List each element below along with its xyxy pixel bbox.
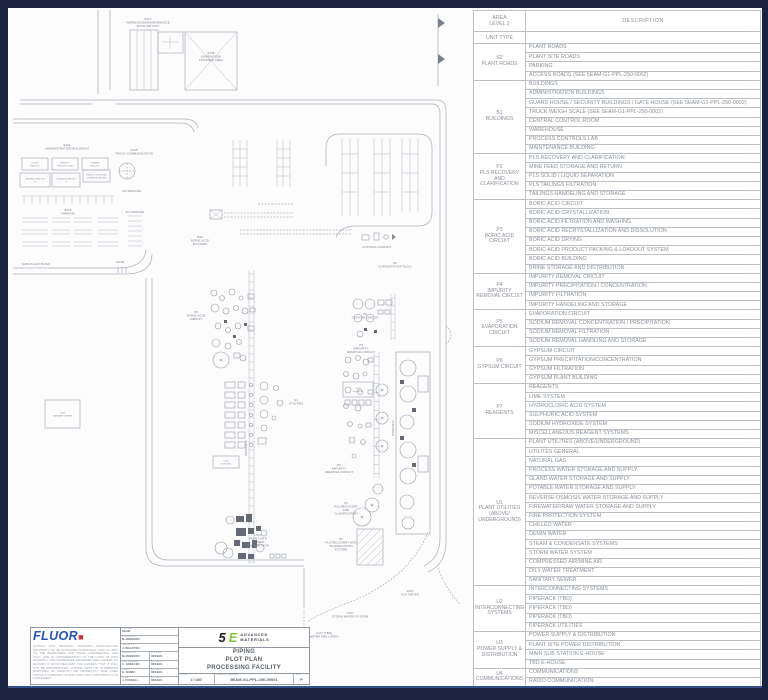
area-table-panel: AREALEVEL 2 DESCRIPTION UNIT TYPE S2PLAN…: [473, 10, 761, 687]
description-cell: NATURAL GAS: [526, 457, 761, 466]
building-box-label: CHANGEFACILITY: [90, 162, 100, 168]
drawing-label: U107STORM WATER SYSTEM: [332, 611, 369, 619]
utility-equipment: [225, 422, 235, 428]
drawing-label: PIPERACK: [244, 439, 248, 456]
approvals-table: CONTRACT5EAMDESIGNED BYM.JOHNSONCHECKED …: [121, 628, 179, 684]
utility-equipment: [238, 382, 245, 388]
description-cell: PIPERACK (TBD): [526, 604, 761, 613]
parking-stalls: [22, 196, 142, 246]
description-cell: WAREHOUSE: [526, 126, 761, 135]
utility-equipment: [225, 442, 235, 448]
approval-row: FLUORK. NAMMAPP DATE06/19/24: [121, 669, 178, 677]
area-group-label: U3POWER SUPPLY & DISTRIBUTION: [474, 632, 526, 669]
area-group-label: P4IMPURITY REMOVAL CIRCUIT: [474, 273, 526, 310]
drawing-label: 8101ADMINISTRATION BUILDINGS: [45, 143, 89, 151]
5e-logo-wordmark: ADVANCED MATERIALS: [240, 633, 269, 642]
description-cell: DEMIN WATER: [526, 530, 761, 539]
p4-impurity-cluster: [344, 356, 384, 527]
table-row: U1PLANT UTILITIES (ABOVE/ UNDERGROUND)PL…: [474, 439, 761, 448]
utility-equipment: [238, 402, 245, 408]
drawing-labels: 8107WAREHOUSE/MAINTENANCEBLDG 150'X110'8…: [22, 17, 420, 639]
drawing-label: P6GYPSUM PLANT BLDG: [378, 261, 412, 269]
description-cell: POTABLE WATER STORAGE AND SUPPLY: [526, 485, 761, 494]
drawing-label: 8107WAREHOUSE/MAINTENANCEBLDG 150'X110': [126, 17, 170, 28]
description-cell: GYPSUM PRECIPITATION/CONCENTRATION: [526, 356, 761, 365]
drawing-label: P3ABORIC ACIDBUILDING: [191, 235, 210, 246]
description-header: DESCRIPTION: [526, 11, 761, 32]
drawing-label: PIPERACK: [391, 419, 395, 436]
description-cell: IMPURITY REMOVAL CIRCUIT: [526, 273, 761, 282]
drawing-number-cell: DRAWING NUMBER 5EAM-G1-PPL-250-00001: [215, 674, 294, 684]
area-description-table: AREALEVEL 2 DESCRIPTION UNIT TYPE S2PLAN…: [473, 10, 761, 687]
description-cell: BRINE STORAGE AND DISTRIBUTION: [526, 264, 761, 273]
description-cell: MAINTENANCE BUILDING: [526, 145, 761, 154]
sheet-bottom-edge: [8, 686, 762, 688]
description-cell: TAILINGS HANDELING AND STORAGE: [526, 191, 761, 200]
description-cell: GUARD HOUSE / SECURITY BUILDINGS / GATE …: [526, 99, 761, 108]
drawing-label: EV PARKING: [126, 210, 145, 214]
5e-logo-five: 5: [219, 631, 226, 644]
description-cell: CHILLED WATER: [526, 521, 761, 530]
description-cell: IMPURITY PRECIPITATION / CONCENTRATION: [526, 282, 761, 291]
description-cell: ACCESS ROADS (SEE 5EAM-G1-PPL-250-0002): [526, 71, 761, 80]
piperacks: [249, 270, 395, 564]
unit-type-empty-cell: [526, 32, 761, 44]
area-group-label: U1PLANT UTILITIES (ABOVE/ UNDERGROUND): [474, 439, 526, 586]
gypsum-loadout: [362, 233, 396, 240]
table-row: B1BUILDINGSBUILDINGS: [474, 80, 761, 89]
drawing-label: 8201PARKING: [61, 208, 75, 216]
area-group-label: P5EVAPORATION CIRCUIT: [474, 310, 526, 347]
description-cell: BORIC ACID CIRCUIT: [526, 200, 761, 209]
area-group-label: P7REAGENTS: [474, 383, 526, 438]
drawing-label: EV PARKING: [123, 189, 142, 193]
approval-row: SUPERVISORM.JOHNSONAPP DATE06/19/24: [121, 652, 178, 660]
drawing-label: 8105TRUCK COMMUNICATION: [115, 148, 153, 156]
description-cell: MAIN SUB STATION E-HOUSE: [526, 650, 761, 659]
description-cell: PIPERACK UTILITIES: [526, 622, 761, 631]
description-cell: STEAM & CONDENSATE SYSTEMS: [526, 540, 761, 549]
building-box-label: ADMINISTRATIONA: [26, 178, 45, 184]
drawing-label: P4IMPURITYREMOVAL CIRCUIT: [347, 343, 375, 354]
description-cell: GLAND WATER STORAGE AND SUPPLY: [526, 475, 761, 484]
description-cell: PROCESS CONTROLS LAB: [526, 135, 761, 144]
description-cell: CENTRAL CONTROL ROOM: [526, 117, 761, 126]
approval-row: DESIGNED BYM.JOHNSON: [121, 636, 178, 644]
description-cell: FIRE PROTECTION SYSTEM: [526, 512, 761, 521]
table-row: P3BORIC ACID CIRCUITBORIC ACID CIRCUIT: [474, 200, 761, 209]
table-row: P6GYPSUM CIRCUITGYPSUM CIRCUIT: [474, 347, 761, 356]
description-cell: FIREWATER/RAW WATER STORAGE AND SUPPLY: [526, 503, 761, 512]
table-row: U2INTERCONNECTING SYSTEMSINTERCONNECTING…: [474, 586, 761, 595]
approval-row: CLIENTJ. FUSSELLAPP DATE06/19/24: [121, 677, 178, 684]
drawing-label: 2021H2O METER: [401, 589, 420, 597]
drawing-label: P2PLS RECOVERY ANDCLARIFICATIONFUTURE: [325, 537, 357, 552]
description-cell: IMPURITY FILTRATION: [526, 292, 761, 301]
fluor-logo-dot: ■: [78, 632, 84, 642]
description-cell: PLS RECOVERY AND CLARIFICATION: [526, 154, 761, 163]
description-cell: PLS TAILINGS FILTRATION: [526, 181, 761, 190]
utility-equipment: [249, 443, 252, 446]
building-box-label: U301E-HOUSE: [353, 388, 364, 393]
utility-equipment: [238, 432, 245, 438]
scale-cell: SCALE 1"=60': [179, 674, 215, 684]
area-group-label: P6GYPSUM CIRCUIT: [474, 347, 526, 384]
approval-row: LEAD ENGINEERC. ANGELESAPP DATE06/19/24: [121, 661, 178, 669]
description-cell: GYPSUM FILTRATION: [526, 365, 761, 374]
utility-equipment: [238, 412, 245, 418]
description-cell: COMPRESSED AIR/MINE AIR: [526, 558, 761, 567]
table-row: S2PLANT ROADSPLANT ROADS: [474, 44, 761, 53]
table-row: U4COMMUNICATIONSCOMMUNICATIONS: [474, 668, 761, 677]
utility-equipment: [249, 403, 252, 406]
area-group-label: P2PLS RECOVERY AND CLARIFICATION: [474, 154, 526, 200]
area-group-label: U4COMMUNICATIONS: [474, 668, 526, 686]
plot-plan-drawing: LUNCHFACILITYFACILITYPROCESS LABCHANGEFA…: [8, 8, 470, 686]
description-cell: SODIUM REMOVAL CONCENTRATION / PRECIPITA…: [526, 319, 761, 328]
roads: [13, 10, 451, 634]
description-cell: BORIC ACID DRYING: [526, 236, 761, 245]
description-cell: PIPERACK (TBD): [526, 595, 761, 604]
utility-equipment: [225, 392, 235, 398]
utility-equipment: [225, 402, 235, 408]
description-cell: SANITARY SEWER: [526, 576, 761, 585]
drawing-title: PIPING PLOT PLAN PROCESSING FACILITY: [179, 648, 309, 672]
description-cell: PROCESS WATER STORAGE AND SUPPLY: [526, 466, 761, 475]
drawing-label: P4IMPURITYREMOVAL CIRCUIT: [325, 463, 353, 474]
description-cell: INTERCONNECTING SYSTEMS: [526, 586, 761, 595]
tank-farm: [376, 352, 430, 534]
p2-future-hatch: [357, 529, 383, 565]
description-cell: MINE FEED STORAGE AND RETURN: [526, 163, 761, 172]
description-cell: COMMUNICATIONS: [526, 668, 761, 677]
description-cell: STORM WATER SYSTEM: [526, 549, 761, 558]
drawing-label: U1UTILITIES: [289, 398, 303, 406]
approval-row: CONTRACT5EAM: [121, 628, 178, 636]
building-box-label: FACILITY FIRST AIDCOMMUNICATIONS: [86, 174, 107, 180]
boric-acid-building: [210, 204, 352, 234]
description-cell: BORIC ACID FILTRATION AND WASHING: [526, 218, 761, 227]
utility-equipment: [249, 413, 252, 416]
drawing-label: GYPSUM LOADOUT: [362, 245, 391, 249]
utility-equipment: [238, 392, 245, 398]
description-cell: HYDROCLORIC ACID SYSTEM: [526, 402, 761, 411]
description-cell: SODIUM REMOVAL HANDLING AND STORAGE: [526, 338, 761, 347]
table-row: P7REAGENTSREAGENTS: [474, 383, 761, 392]
table-row: P5EVAPORATION CIRCUITEVAPORATION CIRCUIT: [474, 310, 761, 319]
description-cell: REAGENTS: [526, 383, 761, 392]
drawing-sheet: LUNCHFACILITYFACILITYPROCESS LABCHANGEFA…: [8, 8, 762, 686]
title-panel: 5 E ADVANCED MATERIALS PIPING PLOT PLAN …: [179, 628, 309, 684]
description-cell: BORIC ACID BUILDING: [526, 255, 761, 264]
description-cell: OILY WATER TREATMENT: [526, 567, 761, 576]
description-cell: BUILDINGS: [526, 80, 761, 89]
description-cell: PLANT SITE ROADS: [526, 53, 761, 62]
drawing-label: P2PLS RECOVERYANDCLARIFICATION: [334, 501, 358, 516]
drawing-label: GATE: [116, 260, 124, 264]
parking-area: [22, 196, 142, 246]
table-row: P4IMPURITY REMOVAL CIRCUITIMPURITY REMOV…: [474, 273, 761, 282]
p3-equipment-cluster: [211, 289, 255, 368]
description-cell: PLANT UTILITIES (ABOVE/UNDERGROUND): [526, 439, 761, 448]
rev-cell: REV P: [294, 674, 309, 684]
description-cell: ADMINISTRATION BUILDINGS: [526, 89, 761, 98]
building-box-label: U116SANITARY SEWER: [53, 413, 73, 418]
utility-equipment: [225, 432, 235, 438]
description-cell: BORIC ACID CRYSTALLIZATION: [526, 209, 761, 218]
building-box-label: LUNCHFACILITY: [30, 163, 40, 168]
utility-equipment: [225, 382, 235, 388]
description-cell: POWER SUPPLY & DISTRIBUTION: [526, 632, 761, 641]
drawing-label: U117 (TBD)WATER WELL AREA: [309, 631, 339, 639]
building-box-label: U105E-HOUSE: [221, 461, 232, 466]
description-cell: MISCELLANEOUS REAGENT SYSTEMS: [526, 429, 761, 438]
description-cell: PLANT SITE POWER DISTRIBUTION: [526, 641, 761, 650]
notice-panel: FLUOR■ NOTICE: THIS DRAWING CONTAINS INT…: [31, 628, 121, 684]
drawing-label: S201 PLANT ROAD: [22, 262, 51, 266]
utility-equipment: [238, 422, 245, 428]
description-cell: REVERSE OSMOSIS WATER STORAGE AND SUPPLY: [526, 494, 761, 503]
description-cell: TRUCK WEIGH SCALE (SEE 5EAM-G1-PPL-250-0…: [526, 108, 761, 117]
page-frame: LUNCHFACILITYFACILITYPROCESS LABCHANGEFA…: [0, 0, 768, 700]
area-group-label: B1BUILDINGS: [474, 80, 526, 154]
piperack-ladder: [391, 294, 395, 340]
fluor-logo: FLUOR■: [33, 629, 118, 644]
building-box-label: ADMINISTRATIONB: [57, 178, 76, 184]
area-group-label: P3BORIC ACID CIRCUIT: [474, 200, 526, 274]
description-cell: LIME SYSTEM: [526, 393, 761, 402]
description-cell: PLANT ROADS: [526, 44, 761, 53]
title-block: FLUOR■ NOTICE: THIS DRAWING CONTAINS INT…: [30, 627, 310, 685]
description-cell: UTILITES GENERAL: [526, 448, 761, 457]
5e-logo-e: E: [229, 631, 238, 644]
area-group-label: U2INTERCONNECTING SYSTEMS: [474, 586, 526, 632]
table-row: P2PLS RECOVERY AND CLARIFICATIONPLS RECO…: [474, 154, 761, 163]
description-cell: GYPSUM PLANT BUILDING: [526, 374, 761, 383]
description-cell: BORIC ACID RECRYSTALLIZATION AND DISSOLU…: [526, 227, 761, 236]
description-cell: SODIUM HYDROXIDE SYSTEM: [526, 420, 761, 429]
north-arrow-icon: [438, 14, 445, 86]
description-cell: SODIUM REMOVAL FILTRATION: [526, 328, 761, 337]
area-header: AREALEVEL 2: [474, 11, 526, 32]
description-cell: PLS SOLID / LIQUID SEPARATION: [526, 172, 761, 181]
description-cell: IMPURITY HANDELING AND STORAGE: [526, 301, 761, 310]
drawing-label: P6GYPSUM CIRCUIT: [352, 312, 379, 320]
approval-row: CHECKED BYJ. WALDYKE: [121, 644, 178, 652]
drawing-label: 8108WAREHOUSELAYDOWN AREA: [199, 51, 224, 62]
building-box-label: FACILITYPROCESS LAB: [57, 162, 73, 168]
description-cell: PARKING: [526, 62, 761, 71]
description-cell: BORIC ACID PRODUCT PACKING & LOADOUT SYS…: [526, 246, 761, 255]
description-cell: PIPERACK (TBD): [526, 613, 761, 622]
description-cell: SULPHURIC ACID SYSTEM: [526, 411, 761, 420]
unit-type-header: UNIT TYPE: [474, 32, 526, 44]
drawing-label: P3BORIC ACIDCIRCUIT: [187, 310, 206, 321]
notice-text: NOTICE: THIS DRAWING CONTAINS INTELLECTU…: [33, 645, 118, 681]
pond-stacks-left: [233, 140, 290, 187]
utility-equipment: [225, 412, 235, 418]
truck-scale: [119, 163, 135, 179]
5e-advanced-materials-logo: 5 E ADVANCED MATERIALS: [179, 628, 309, 648]
description-cell: TBD E-HOUSE: [526, 659, 761, 668]
table-row: U3POWER SUPPLY & DISTRIBUTIONPOWER SUPPL…: [474, 632, 761, 641]
description-cell: GYPSUM CIRCUIT: [526, 347, 761, 356]
pond-field-right: [326, 134, 432, 238]
e-house-auxiliary: [345, 400, 371, 405]
area-group-label: S2PLANT ROADS: [474, 44, 526, 81]
title-block-footer: SCALE 1"=60' DRAWING NUMBER 5EAM-G1-PPL-…: [179, 673, 309, 684]
description-cell: EVAPORATION CIRCUIT: [526, 310, 761, 319]
